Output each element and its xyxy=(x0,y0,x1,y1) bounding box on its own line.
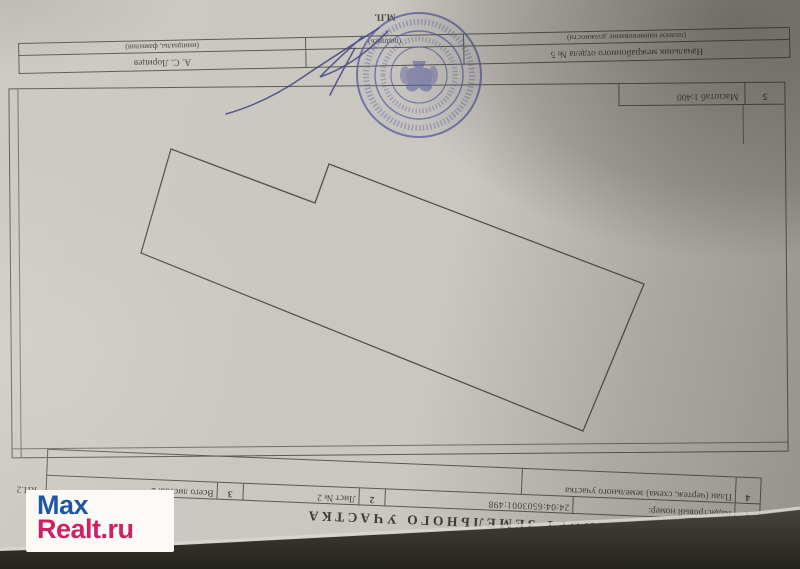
watermark-realt: Realt.ru xyxy=(37,516,174,542)
watermark: Max Realt.ru xyxy=(26,490,174,552)
photo-of-document: «14» октября 2015 г.№ 24/15-733696 КАДАС… xyxy=(0,0,800,569)
desk-surface xyxy=(0,0,800,569)
